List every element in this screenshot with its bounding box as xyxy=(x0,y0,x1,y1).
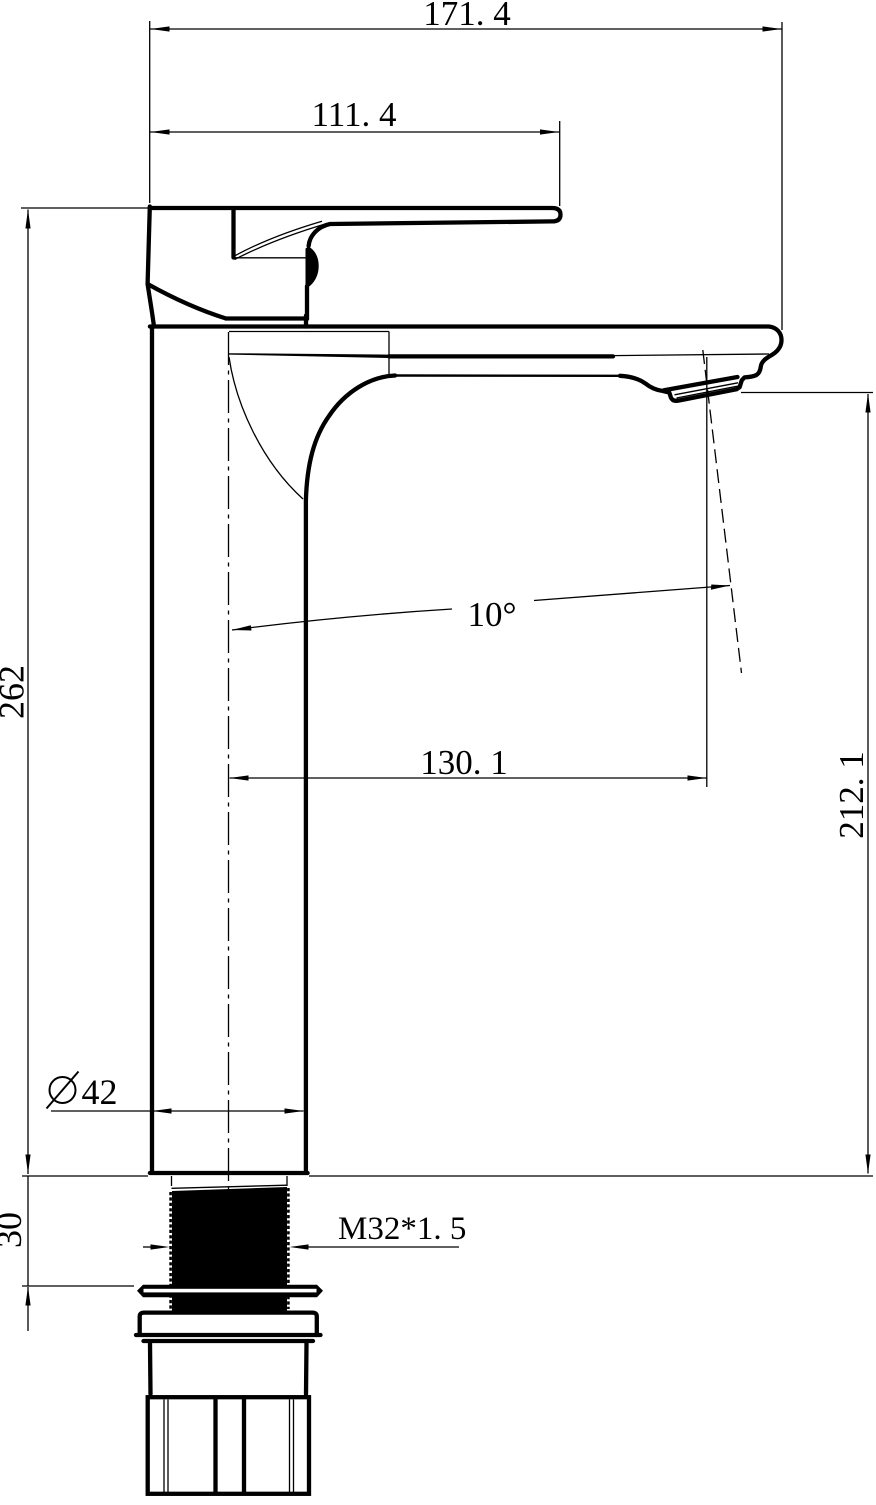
svg-text:212. 1: 212. 1 xyxy=(832,751,871,839)
svg-text:M32*1. 5: M32*1. 5 xyxy=(338,1211,466,1247)
svg-text:30: 30 xyxy=(0,1212,29,1248)
svg-text:111. 4: 111. 4 xyxy=(312,95,397,134)
svg-text:262: 262 xyxy=(0,665,32,719)
svg-text:171. 4: 171. 4 xyxy=(423,0,511,33)
svg-text:130. 1: 130. 1 xyxy=(420,743,508,782)
svg-text:10°: 10° xyxy=(468,595,517,634)
svg-text:42: 42 xyxy=(82,1072,118,1112)
